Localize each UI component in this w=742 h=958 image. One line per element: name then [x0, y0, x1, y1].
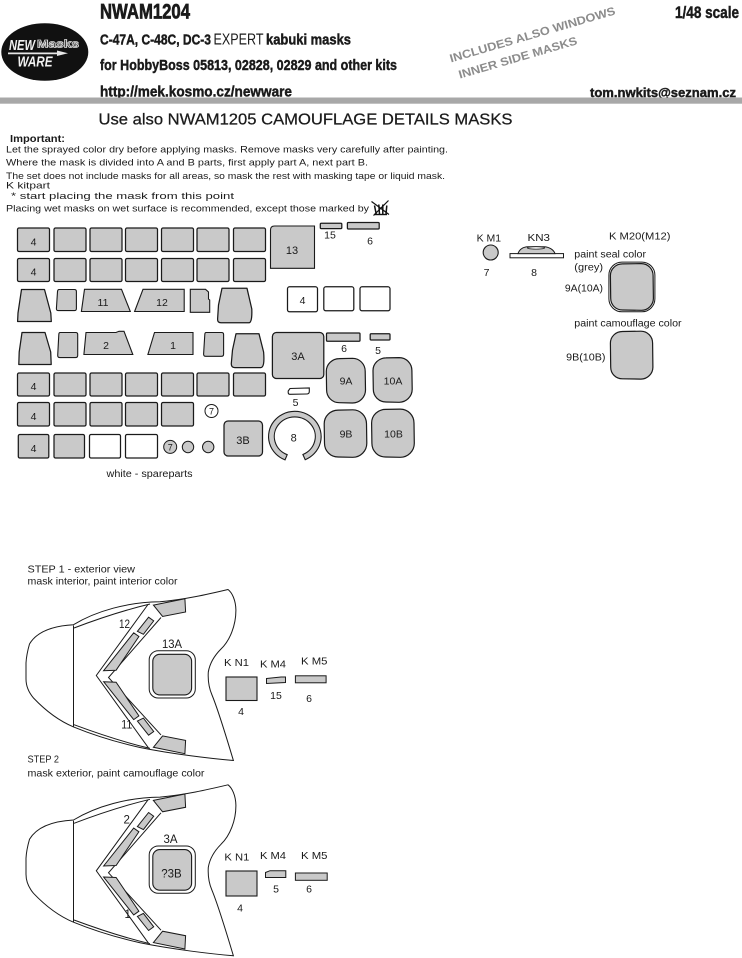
- svg-text:K kitpart: K kitpart: [6, 181, 50, 192]
- svg-text:7: 7: [484, 267, 490, 279]
- svg-text:15: 15: [324, 230, 336, 242]
- svg-text:K N1: K N1: [224, 657, 249, 669]
- svg-text:6: 6: [306, 884, 312, 896]
- svg-text:4: 4: [31, 411, 37, 423]
- svg-text:1: 1: [170, 340, 176, 352]
- svg-text:8: 8: [291, 433, 297, 445]
- svg-text:1: 1: [125, 909, 131, 921]
- svg-text:6: 6: [367, 236, 373, 248]
- svg-text:11: 11: [98, 297, 109, 309]
- svg-text:1/48 scale: 1/48 scale: [675, 4, 739, 22]
- svg-text:11: 11: [121, 719, 132, 731]
- svg-text:K M4: K M4: [260, 659, 286, 671]
- svg-text:4: 4: [31, 381, 37, 393]
- svg-text:Placing wet masks on wet surfa: Placing wet masks on wet surface is reco…: [6, 204, 369, 215]
- svg-text:STEP 2: STEP 2: [28, 754, 60, 766]
- svg-text:2: 2: [124, 815, 130, 827]
- svg-text:7: 7: [209, 407, 214, 417]
- svg-text:white - spareparts: white - spareparts: [105, 469, 192, 480]
- svg-text:NWAM1204: NWAM1204: [100, 1, 190, 24]
- svg-text:K N1: K N1: [224, 852, 249, 864]
- svg-text:5: 5: [273, 884, 279, 896]
- svg-text:6: 6: [306, 693, 312, 705]
- svg-text:Important:: Important:: [10, 133, 65, 145]
- svg-text:WARE: WARE: [18, 55, 54, 71]
- svg-text:mask interior, paint interior: mask interior, paint interior color: [28, 576, 179, 588]
- svg-text:10B: 10B: [384, 429, 403, 441]
- svg-text:15: 15: [270, 690, 282, 702]
- svg-text:4: 4: [31, 267, 37, 279]
- svg-text:K M20(M12): K M20(M12): [609, 231, 671, 243]
- svg-text:9A: 9A: [340, 376, 353, 388]
- svg-text:K M4: K M4: [260, 850, 286, 862]
- svg-text:4: 4: [238, 706, 244, 718]
- svg-text:4: 4: [31, 237, 37, 249]
- svg-text:K M1: K M1: [477, 233, 502, 245]
- svg-text:9B: 9B: [340, 429, 353, 441]
- svg-text:8: 8: [531, 267, 537, 279]
- svg-text:7: 7: [168, 443, 173, 453]
- svg-text:13A: 13A: [162, 639, 182, 651]
- svg-text:3A: 3A: [164, 834, 178, 846]
- svg-text:4: 4: [237, 903, 243, 915]
- svg-text:Let the sprayed color dry befo: Let the sprayed color dry before applyin…: [6, 145, 448, 156]
- svg-text:NEW: NEW: [9, 37, 36, 54]
- svg-text:3B: 3B: [236, 435, 249, 447]
- svg-text:kabuki masks: kabuki masks: [266, 32, 351, 49]
- svg-text:12: 12: [119, 619, 130, 631]
- svg-text:6: 6: [341, 343, 347, 355]
- svg-text:* start placing the mask from: * start placing the mask from this point: [11, 191, 234, 202]
- svg-text:10A: 10A: [384, 376, 403, 388]
- svg-text:for HobbyBoss 05813, 02828, 02: for HobbyBoss 05813, 02828, 02829 and ot…: [100, 57, 397, 74]
- svg-text:STEP 1 - exterior view: STEP 1 - exterior view: [28, 564, 136, 576]
- svg-text:?3B: ?3B: [161, 869, 182, 881]
- svg-text:9A(10A): 9A(10A): [565, 284, 603, 295]
- svg-text:5: 5: [293, 397, 299, 409]
- svg-text:K M5: K M5: [301, 656, 328, 668]
- svg-text:K M5: K M5: [301, 850, 328, 862]
- svg-text:KN3: KN3: [528, 232, 551, 244]
- svg-text:13: 13: [286, 245, 298, 257]
- svg-text:Where the mask is divided into: Where the mask is divided into A and B p…: [6, 158, 368, 169]
- svg-text:2: 2: [103, 340, 109, 352]
- svg-text:Use also NWAM1205 CAMOUFLAGE D: Use also NWAM1205 CAMOUFLAGE DETAILS MAS…: [99, 112, 513, 129]
- svg-text:12: 12: [156, 297, 168, 309]
- svg-text:The set does not include masks: The set does not include masks for all a…: [6, 171, 445, 182]
- svg-text:4: 4: [300, 295, 306, 307]
- svg-text:C-47A, C-48C, DC-3: C-47A, C-48C, DC-3: [100, 32, 211, 49]
- svg-text:(grey): (grey): [574, 263, 603, 274]
- svg-text:3A: 3A: [291, 351, 305, 363]
- svg-text:paint seal color: paint seal color: [574, 250, 646, 261]
- svg-text:4: 4: [31, 443, 37, 455]
- svg-text:Masks: Masks: [37, 39, 79, 51]
- svg-text:9B(10B): 9B(10B): [566, 353, 605, 364]
- svg-text:5: 5: [375, 345, 381, 357]
- svg-text:mask exterior, paint camouflag: mask exterior, paint camouflage color: [28, 768, 206, 780]
- svg-text:paint camouflage color: paint camouflage color: [574, 319, 682, 330]
- svg-text:EXPERT: EXPERT: [214, 32, 264, 49]
